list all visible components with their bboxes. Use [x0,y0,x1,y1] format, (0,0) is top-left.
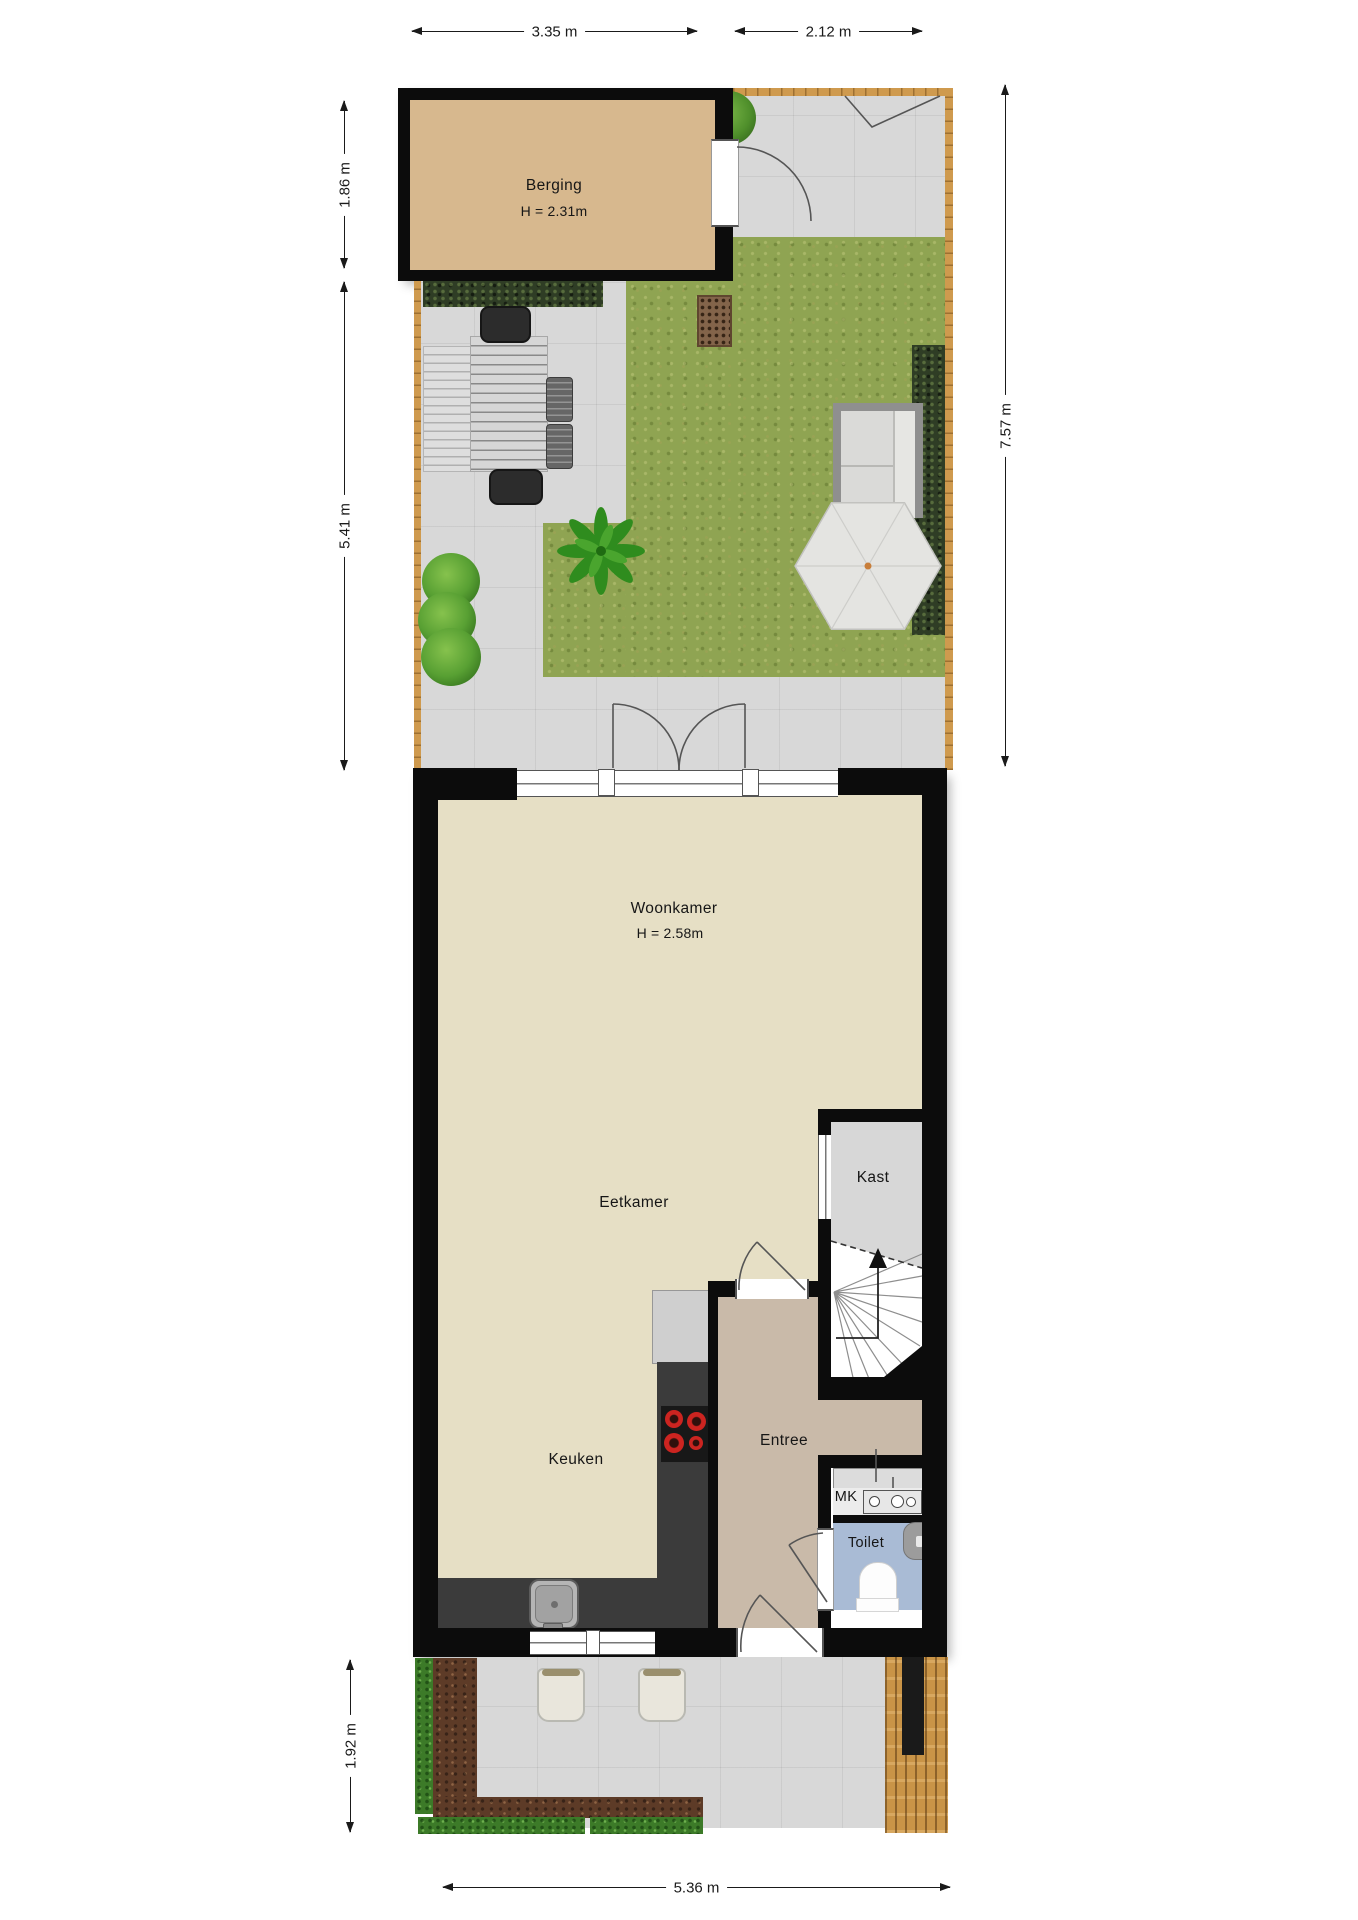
garden-chair [480,306,531,343]
terrace-soil-bed [433,1658,477,1798]
lounge-sofa [833,403,923,518]
mk-top-wall [818,1455,947,1468]
meter-dial [869,1496,880,1507]
toilet-door-opening [817,1528,834,1611]
front-door-opening [736,1628,824,1657]
terrace-hedge [418,1817,585,1834]
garden-chair [546,424,573,469]
house-wall-bottom [413,1628,947,1657]
toilet-label: Toilet [848,1535,884,1551]
eetkamer-label: Eetkamer [599,1194,669,1212]
keuken-entree-wall [708,1281,718,1633]
arrow-right-icon [687,27,698,35]
bush [421,628,481,686]
stairs-left-wall [818,1219,831,1400]
dimension-bottom: 5.36 m [443,1881,950,1895]
woonkamer-floor [438,795,922,1284]
arrow-left-icon [411,27,422,35]
house-wall-left [413,768,438,1657]
entree-floor [818,1400,922,1455]
arrow-up-icon [340,100,348,111]
arrow-up-icon [1001,84,1009,95]
terrace-chair [537,1668,585,1722]
terrace-chair [638,1668,686,1722]
window-mullion [742,769,759,796]
arrow-right-icon [940,1883,951,1891]
dimension-label: 1.92 m [343,1715,360,1777]
mk-label: MK [835,1489,858,1505]
floorplan-canvas: Berging H = 2.31m Woonkamer H = 2.58m Ee… [0,0,1358,1920]
dimension-bottom-left: 1.92 m [344,1660,358,1832]
kast-left-wall [818,1109,831,1135]
arrow-left-icon [734,27,745,35]
mk-toilet-divider-wall [833,1515,922,1523]
keuken-label: Keuken [549,1451,604,1469]
doormat [697,295,732,347]
wood-screen-gap [902,1657,924,1755]
kast-window [818,1135,833,1219]
garden-table-extension [423,346,472,472]
terrace-hedge [590,1817,703,1834]
arrow-down-icon [346,1822,354,1833]
fence-top [733,88,953,96]
dimension-top-left: 3.35 m [412,25,697,39]
window-mullion [586,1630,600,1655]
kitchen-cabinet [652,1290,712,1364]
entree-floor [718,1297,818,1633]
lawn [543,523,626,677]
dimension-label: 1.86 m [337,154,354,216]
dimension-label: 5.41 m [337,495,354,557]
garden-chair [489,469,543,505]
dimension-label: 2.12 m [798,24,860,41]
sofa-chaise [893,411,915,518]
woonkamer-height-label: H = 2.58m [637,925,704,941]
eetkamer-door-opening [735,1279,809,1299]
window-mullion [598,769,615,796]
dimension-left-lower: 5.41 m [338,282,352,770]
hedge [423,281,603,307]
arrow-down-icon [340,258,348,269]
sink-drain [551,1601,558,1608]
wc-tank [856,1598,899,1612]
burner [687,1412,706,1431]
garden-chair [546,377,573,422]
kitchen-sink [529,1579,579,1629]
arrow-down-icon [340,760,348,771]
kast-label: Kast [857,1169,890,1187]
berging-door-opening [711,139,739,227]
cooktop [660,1405,710,1463]
fence-left [414,281,421,770]
burner [664,1433,684,1453]
dimension-label: 7.57 m [998,395,1015,457]
arrow-right-icon [912,27,923,35]
woonkamer-label: Woonkamer [631,900,718,918]
house-wall-right [922,768,947,1657]
toilet-threshold [833,1610,922,1628]
arrow-down-icon [1001,756,1009,767]
fence-right [945,88,953,770]
arrow-left-icon [442,1883,453,1891]
dimension-left-upper: 1.86 m [338,101,352,268]
dimension-label: 5.36 m [666,1880,728,1897]
house-wall-top-left [413,768,517,800]
berging-label: Berging [526,177,582,195]
burner [689,1436,703,1450]
dimension-right: 7.57 m [999,85,1013,766]
terrace-soil-bed [433,1797,703,1818]
mk-shelf [833,1468,924,1490]
arrow-up-icon [340,281,348,292]
dimension-top-right: 2.12 m [735,25,922,39]
side-yard-paving [733,96,948,237]
burner [665,1410,683,1428]
berging-height-label: H = 2.31m [521,203,588,219]
garden-table [470,336,548,472]
garden-facade-window [517,770,838,797]
terrace-hedge [415,1658,433,1814]
arrow-up-icon [346,1659,354,1670]
meter-dial [891,1495,904,1508]
entree-label: Entree [760,1432,808,1450]
meter-dial [906,1497,916,1507]
dimension-label: 3.35 m [524,24,586,41]
kast-top-wall [818,1109,947,1122]
